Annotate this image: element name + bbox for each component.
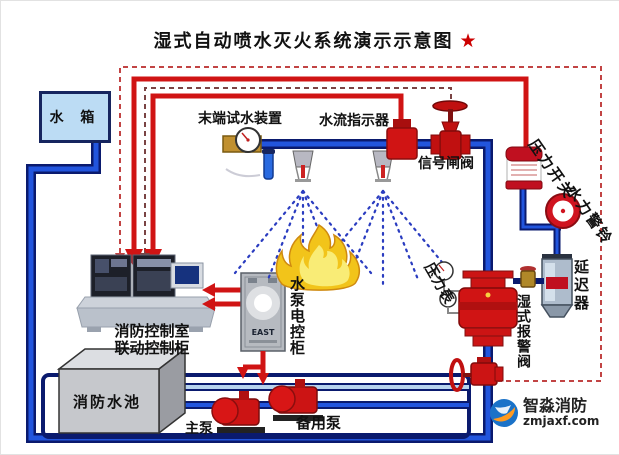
arrow-left-icon [202,283,215,297]
main-pump-label: 主泵 [185,418,213,438]
control-console [77,255,215,332]
water-tank: 水 箱 [39,91,111,143]
wet-alarm-valve-label: 湿式报警阀 [513,294,533,369]
control-room-label-line2: 联动控制柜 [93,340,211,357]
end-test-device [223,128,275,179]
end-test-device-label: 末端试水装置 [198,108,282,128]
signal-gate-valve-device [431,101,470,159]
diagram-title: 湿式自动喷水灭火系统演示示意图★ [96,27,536,53]
delayer-label: 延迟器 [571,259,592,313]
main-pump-device [212,391,265,433]
flow-indicator-label: 水流指示器 [319,110,389,130]
test-ball-valve [513,266,544,287]
pump-cabinet-label: 水泵电控柜 [287,276,308,356]
star-icon: ★ [459,30,478,52]
diagram-canvas: EAST [0,0,619,455]
watermark: 智淼消防 zmjaxf.com [489,397,599,428]
signal-line-dashed-gatevalve [145,88,451,253]
watermark-name: 智淼消防 [523,397,599,414]
delayer-device [542,254,572,317]
flow-indicator-device [387,119,417,159]
title-text: 湿式自动喷水灭火系统演示示意图 [153,31,453,52]
water-tank-label: 水 箱 [50,107,101,127]
backup-pump-label: 备用泵 [296,412,341,433]
control-room-label-line1: 消防控制室 [93,323,211,340]
signal-gate-valve-label: 信号闸阀 [418,153,474,173]
sprinkler-head [293,151,313,182]
fire-pool-label: 消防水池 [73,391,141,412]
piping-and-devices-layer: EAST [1,1,619,454]
pump-electric-cabinet: EAST [241,273,285,351]
control-room-label: 消防控制室 联动控制柜 [93,323,211,357]
cabinet-brand-text: EAST [252,328,275,337]
watermark-site: zmjaxf.com [523,414,599,428]
